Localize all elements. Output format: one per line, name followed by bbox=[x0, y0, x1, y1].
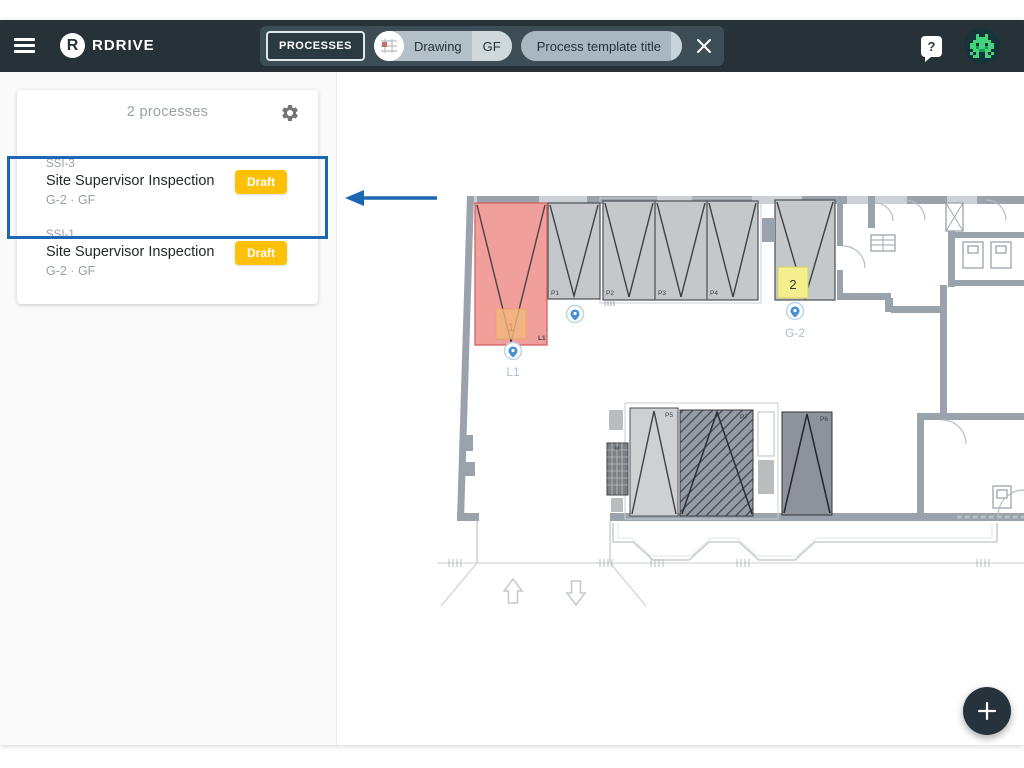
process-template-chip-label: Process template title bbox=[527, 39, 671, 54]
close-icon[interactable] bbox=[694, 36, 714, 56]
floor-plan: P1 P2 P3 P4 1 L1 bbox=[437, 190, 1024, 630]
drawing-filter-chip[interactable]: Drawing GF bbox=[374, 31, 512, 61]
drawing-chip-label: Drawing bbox=[404, 39, 472, 54]
stall-label-p4: P4 bbox=[710, 290, 718, 297]
entry-arrow-up bbox=[504, 579, 522, 603]
process-sidebar: 2 processes SSI-3 Site Supervisor Inspec… bbox=[0, 72, 337, 745]
app-window: R RDRIVE PROCESSES Drawing GF bbox=[0, 20, 1024, 745]
interior-walls bbox=[837, 196, 1024, 520]
user-avatar[interactable] bbox=[964, 28, 1000, 64]
brand: R RDRIVE bbox=[60, 33, 155, 58]
stall-label-p2: P2 bbox=[606, 290, 614, 297]
stall-label-p7: P7 bbox=[740, 414, 748, 421]
process-location: G-2 · GF bbox=[46, 264, 298, 278]
highlighted-room-l1[interactable]: 1 L1 bbox=[475, 203, 547, 345]
drawing-canvas: P1 P2 P3 P4 1 L1 bbox=[337, 72, 1024, 745]
parking-stalls-bottom: M P5 P7 P6 bbox=[607, 403, 832, 519]
annotation-arrow bbox=[343, 187, 439, 209]
pin-g2-label: G-2 bbox=[785, 326, 805, 340]
process-count-label: 2 processes bbox=[127, 104, 208, 120]
process-template-chip[interactable]: Process template title bbox=[521, 31, 682, 61]
note-marker-2[interactable]: 2 bbox=[778, 267, 808, 299]
note-2-number: 2 bbox=[789, 277, 796, 292]
processes-button[interactable]: PROCESSES bbox=[266, 31, 365, 61]
rdrive-logo-icon: R bbox=[60, 33, 85, 58]
brand-name: RDRIVE bbox=[92, 37, 155, 54]
search-filter-group: PROCESSES Drawing GF Process template ti… bbox=[260, 26, 724, 66]
menu-icon[interactable] bbox=[14, 38, 35, 54]
content-area: 2 processes SSI-3 Site Supervisor Inspec… bbox=[0, 72, 1024, 745]
pin-g2[interactable]: G-2 bbox=[785, 303, 805, 341]
help-glyph: ? bbox=[928, 39, 936, 54]
process-list-header: 2 processes bbox=[17, 90, 318, 134]
status-badge: Draft bbox=[235, 241, 287, 265]
pin-l1-label: L1 bbox=[506, 365, 520, 379]
pin-l1[interactable]: L1 bbox=[505, 343, 522, 380]
stall-label-p3: P3 bbox=[658, 290, 666, 297]
help-button[interactable]: ? bbox=[921, 36, 942, 57]
site-lines bbox=[437, 521, 1024, 606]
chip-edge-strip bbox=[671, 31, 682, 61]
topbar: R RDRIVE PROCESSES Drawing GF bbox=[0, 20, 1024, 72]
stall-label-p6: P6 bbox=[820, 416, 828, 423]
fab-add-button[interactable] bbox=[963, 687, 1011, 735]
room-label-l1: L1 bbox=[538, 335, 546, 342]
note-1-number: 1 bbox=[508, 322, 514, 334]
utility-box-m: M bbox=[607, 443, 628, 495]
plus-icon bbox=[978, 702, 996, 720]
stall-label-p1: P1 bbox=[551, 290, 559, 297]
stall-label-m: M bbox=[615, 446, 620, 452]
drawing-thumbnail-icon bbox=[374, 31, 404, 61]
drawing-chip-floor-badge: GF bbox=[472, 31, 512, 61]
settings-gear-icon[interactable] bbox=[280, 103, 300, 123]
annotation-highlight-box bbox=[7, 156, 328, 239]
stall-label-p5: P5 bbox=[665, 412, 673, 419]
pin-p1[interactable] bbox=[567, 306, 584, 323]
exit-arrow-down bbox=[567, 581, 585, 605]
